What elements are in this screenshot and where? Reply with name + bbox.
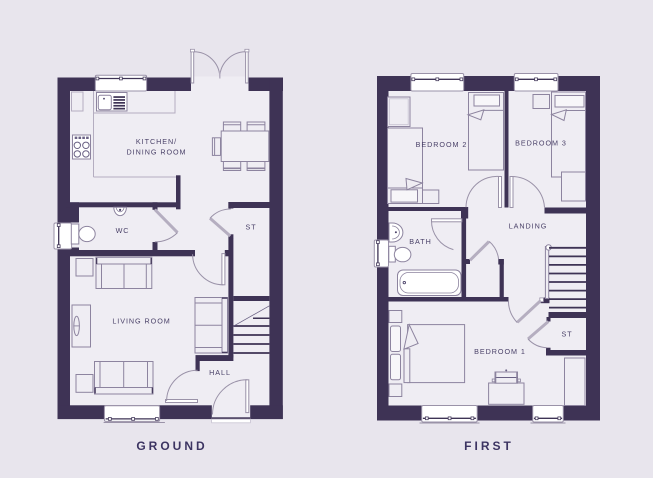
svg-text:ST: ST (245, 223, 256, 232)
svg-text:BEDROOM 3: BEDROOM 3 (515, 139, 567, 148)
svg-text:HALL: HALL (209, 368, 231, 377)
svg-text:FIRST: FIRST (464, 439, 514, 453)
svg-text:WC: WC (116, 226, 130, 235)
svg-text:LANDING: LANDING (509, 222, 548, 231)
svg-text:DINING ROOM: DINING ROOM (127, 148, 187, 157)
svg-text:KITCHEN/: KITCHEN/ (136, 137, 177, 146)
svg-text:GROUND: GROUND (136, 439, 207, 453)
svg-text:BEDROOM 1: BEDROOM 1 (474, 347, 526, 356)
svg-text:BATH: BATH (409, 237, 431, 246)
svg-text:LIVING ROOM: LIVING ROOM (112, 317, 170, 326)
svg-text:BEDROOM 2: BEDROOM 2 (416, 140, 468, 149)
svg-text:ST: ST (561, 330, 572, 339)
